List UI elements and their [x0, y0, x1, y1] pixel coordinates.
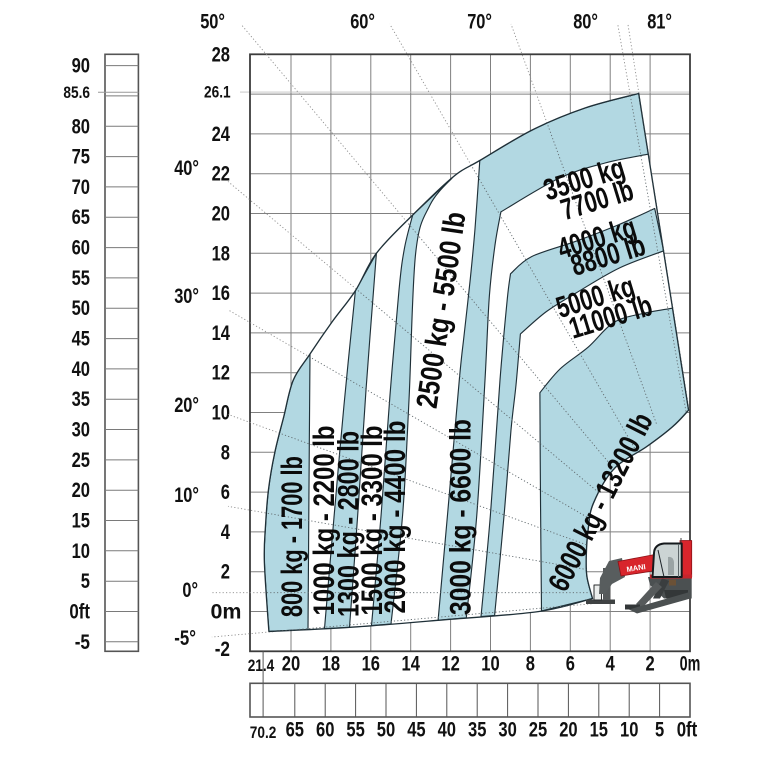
svg-text:20: 20	[212, 203, 230, 226]
svg-text:6: 6	[566, 653, 575, 676]
svg-text:8: 8	[526, 653, 535, 676]
svg-text:10: 10	[481, 653, 499, 676]
svg-text:30: 30	[72, 419, 90, 442]
svg-text:14: 14	[402, 653, 421, 676]
svg-text:25: 25	[72, 449, 91, 472]
svg-text:12: 12	[441, 653, 459, 676]
svg-text:3000 kg - 6600 lb: 3000 kg - 6600 lb	[445, 419, 478, 615]
svg-text:30°: 30°	[174, 285, 199, 308]
svg-text:20: 20	[559, 719, 577, 742]
svg-text:2000 kg - 4400 lb: 2000 kg - 4400 lb	[379, 421, 412, 614]
svg-text:28: 28	[212, 43, 231, 66]
svg-text:10°: 10°	[174, 484, 199, 507]
svg-text:50: 50	[377, 719, 395, 742]
svg-text:75: 75	[72, 146, 91, 169]
svg-text:45: 45	[72, 328, 91, 351]
svg-text:-5°: -5°	[174, 627, 196, 650]
svg-text:85.6: 85.6	[63, 84, 90, 102]
svg-text:80°: 80°	[573, 11, 598, 34]
svg-text:60: 60	[72, 237, 90, 260]
svg-text:65: 65	[72, 206, 91, 229]
svg-text:0m: 0m	[211, 601, 242, 624]
svg-text:80: 80	[72, 115, 90, 138]
svg-text:21.4: 21.4	[248, 657, 275, 675]
svg-text:2: 2	[221, 561, 230, 584]
svg-text:40: 40	[72, 358, 90, 381]
svg-text:20: 20	[282, 653, 300, 676]
svg-text:6: 6	[221, 481, 230, 504]
svg-text:60: 60	[316, 719, 334, 742]
svg-text:90: 90	[72, 55, 90, 78]
svg-text:16: 16	[362, 653, 380, 676]
svg-text:55: 55	[72, 267, 91, 290]
svg-text:70.2: 70.2	[250, 724, 277, 742]
svg-text:55: 55	[346, 719, 365, 742]
svg-text:10: 10	[620, 719, 638, 742]
svg-text:50: 50	[72, 297, 90, 320]
svg-text:45: 45	[407, 719, 426, 742]
svg-text:0m: 0m	[680, 653, 701, 676]
svg-text:0°: 0°	[182, 579, 198, 602]
svg-text:14: 14	[212, 322, 231, 345]
svg-text:-2: -2	[215, 638, 230, 661]
svg-text:2: 2	[646, 653, 655, 676]
svg-text:40: 40	[438, 719, 456, 742]
svg-text:24: 24	[212, 123, 231, 146]
svg-text:5: 5	[655, 719, 664, 742]
svg-text:20°: 20°	[174, 394, 199, 417]
svg-text:50°: 50°	[200, 11, 225, 34]
svg-text:70: 70	[72, 176, 90, 199]
svg-text:18: 18	[212, 242, 231, 265]
svg-text:15: 15	[72, 510, 91, 533]
svg-text:35: 35	[468, 719, 487, 742]
svg-text:0ft: 0ft	[69, 601, 90, 624]
svg-text:20: 20	[72, 479, 90, 502]
svg-text:5: 5	[81, 570, 90, 593]
svg-text:65: 65	[286, 719, 305, 742]
svg-text:35: 35	[72, 388, 91, 411]
svg-text:4: 4	[606, 653, 615, 676]
svg-text:10: 10	[212, 402, 230, 425]
svg-text:26.1: 26.1	[204, 84, 231, 102]
svg-text:25: 25	[529, 719, 548, 742]
svg-text:10: 10	[72, 540, 90, 563]
svg-text:40°: 40°	[174, 157, 199, 180]
svg-text:4: 4	[221, 521, 230, 544]
svg-text:70°: 70°	[467, 11, 492, 34]
svg-text:15: 15	[590, 719, 609, 742]
svg-text:16: 16	[212, 282, 230, 305]
svg-text:800 kg - 1700 lb: 800 kg - 1700 lb	[276, 456, 309, 617]
svg-text:0ft: 0ft	[677, 719, 698, 742]
svg-text:12: 12	[212, 362, 230, 385]
svg-text:8: 8	[221, 441, 230, 464]
svg-text:-5: -5	[75, 631, 91, 654]
svg-text:60°: 60°	[350, 11, 375, 34]
svg-text:81°: 81°	[647, 11, 672, 34]
svg-text:30: 30	[498, 719, 516, 742]
svg-text:22: 22	[212, 163, 230, 186]
svg-text:18: 18	[322, 653, 341, 676]
